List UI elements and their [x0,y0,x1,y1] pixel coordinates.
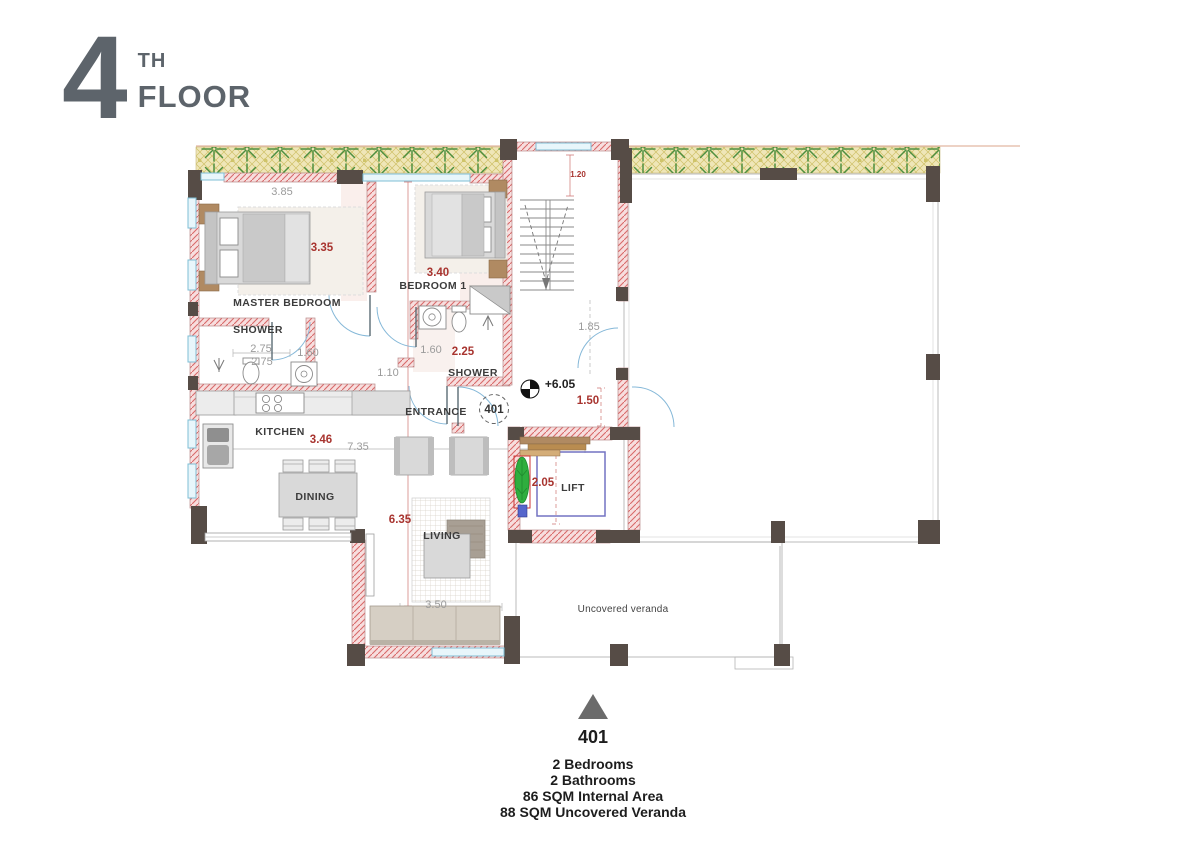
dim-shower1-door: 1.60 [297,347,318,359]
master-bed [199,204,363,295]
dim-shower1-width: 2.75 [250,343,271,355]
dim-kitchen-width: 3.46 [310,434,332,446]
dim-sofa-width: 3.50 [425,599,446,611]
dim-lift-width: 2.05 [532,477,555,489]
room-label-veranda: Uncovered veranda [578,604,669,615]
dim-living-length: 6.35 [389,514,412,526]
dim-lobby-depth: 1.85 [578,321,599,333]
summary-internal-area: 86 SQM Internal Area [413,789,773,803]
room-label-entrance: ENTRANCE [405,406,467,418]
dim-shower2-left: 1.60 [420,344,441,356]
floor-plan-page: 4 TH FLOOR [0,0,1200,848]
room-label-living: LIVING [423,530,460,542]
dim-hall-width: 1.10 [377,367,398,379]
room-label-bedroom-1: BEDROOM 1 [399,280,466,292]
north-arrow-icon [578,694,608,719]
room-label-shower-1: SHOWER [233,324,283,336]
dim-bedroom1-width: 3.40 [427,267,449,279]
room-label-shower-2: SHOWER [448,367,498,379]
unit-circle-number: 401 [484,404,504,416]
room-label-lift: LIFT [561,482,585,494]
dim-entry-width: 1.50 [577,395,599,407]
staircase [520,200,574,290]
level-marker [521,380,539,398]
unit-number: 401 [413,727,773,748]
summary-bathrooms: 2 Bathrooms [413,773,773,787]
summary-bedrooms: 2 Bedrooms [413,757,773,771]
dim-stair-width: 1.20 [570,170,586,179]
level-marker-value: +6.05 [545,377,576,391]
dim-internal-width: 7.35 [347,441,368,453]
dim-shower1-depth: 2.75 [251,356,272,368]
summary-veranda-area: 88 SQM Uncovered Veranda [413,805,773,819]
room-label-dining: DINING [295,491,334,503]
room-label-kitchen: KITCHEN [255,426,304,438]
veranda-large [624,174,938,542]
dim-master-width: 3.85 [271,186,292,198]
unit-summary: 401 2 Bedrooms 2 Bathrooms 86 SQM Intern… [413,694,773,821]
dim-shower2-width: 2.25 [452,346,475,358]
room-label-master-bedroom: MASTER BEDROOM [233,297,341,309]
bedroom1-bed [415,180,507,278]
dim-master-height: 3.35 [311,242,334,254]
